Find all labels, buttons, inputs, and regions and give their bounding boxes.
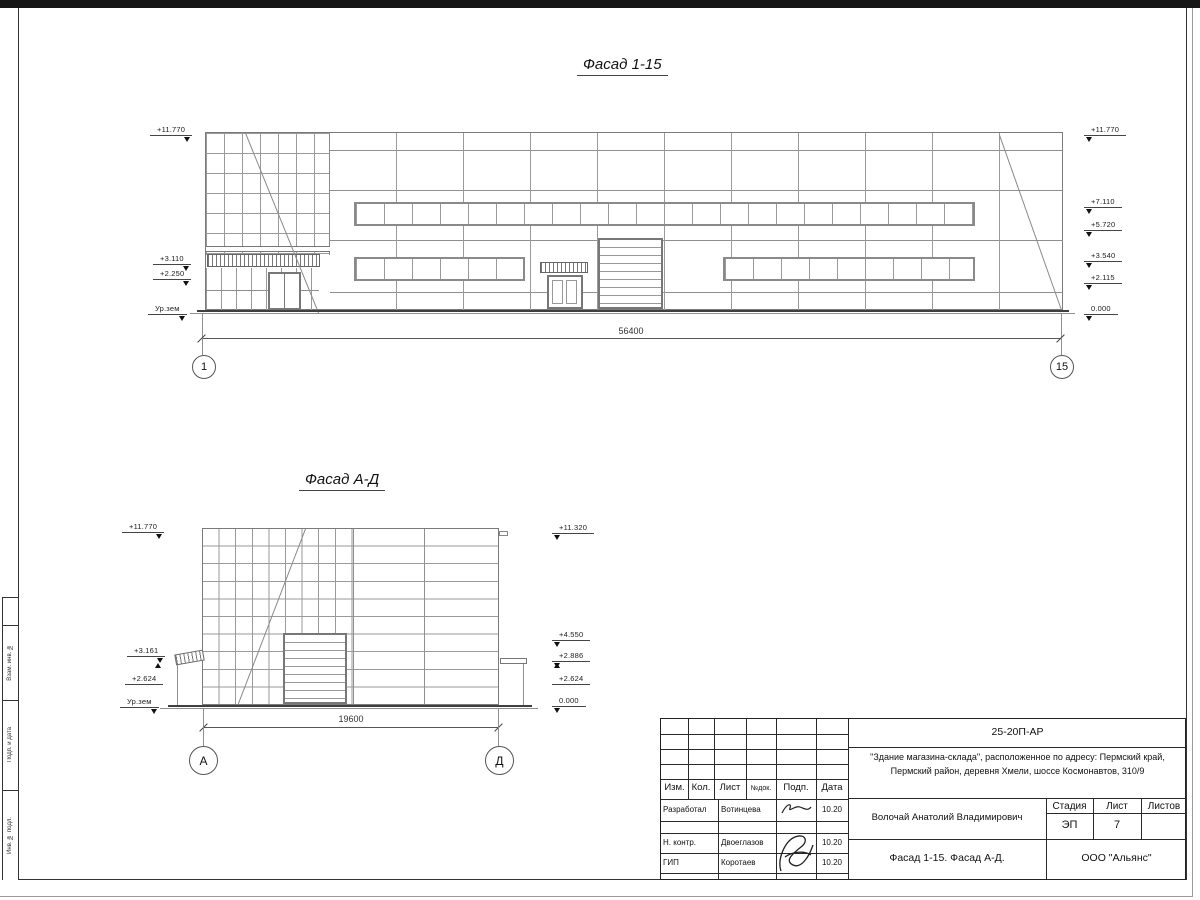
side-stamp-cell: Взам. инв. № (3, 625, 17, 700)
title-block: Изм. Кол. Лист №док. Подп. Дата Разработ… (660, 718, 1186, 880)
side-canopy (500, 658, 527, 664)
level-arrow-icon (156, 534, 162, 539)
sign-date: 10.20 (816, 858, 848, 867)
elevation-value: +3.540 (1084, 251, 1122, 262)
person-name: Двоеглазов (721, 838, 764, 847)
facade-a-d-title: Фасад А-Д (299, 471, 385, 491)
level-arrow-icon (554, 663, 560, 668)
tb-line (661, 821, 848, 822)
level-arrow-icon (179, 316, 185, 321)
tb-line (661, 749, 848, 750)
elevation-mark: +2.624 (552, 668, 590, 686)
sheet-right-edge (1192, 8, 1193, 897)
tb-line (661, 734, 848, 735)
elevation-value: +2.115 (1084, 273, 1122, 284)
door-leaf (566, 280, 577, 304)
elevation-mark: +2.115 (1084, 267, 1122, 285)
sign-date: 10.20 (816, 838, 848, 847)
axis-leader (498, 727, 499, 746)
elevation-value: +2.624 (552, 674, 590, 685)
elevation-value: Ур.зем (148, 304, 187, 315)
sheets-label: Листов (1141, 801, 1187, 812)
tb-line (661, 764, 848, 765)
stage-label: Стадия (1046, 801, 1093, 812)
elevation-value: +3.161 (127, 646, 165, 657)
axis-bubble: Д (485, 746, 514, 775)
elevation-value: +2.250 (153, 269, 191, 280)
signature (779, 800, 813, 818)
tb-line (848, 839, 1187, 840)
col-header-podp: Подп. (776, 782, 816, 793)
ribbon-window-band (723, 257, 975, 281)
elevation-value: +11.770 (1084, 125, 1126, 136)
elevation-mark: +2.624 (125, 668, 163, 686)
storefront-awning (207, 254, 320, 267)
elevation-mark: +11.320 (552, 517, 594, 535)
sign-date: 10.20 (816, 805, 848, 814)
ribbon-window-band (354, 257, 525, 281)
entrance-canopy (540, 262, 588, 273)
tb-line (661, 853, 848, 854)
project-description-line1: "Здание магазина-склада", расположенное … (851, 752, 1184, 762)
sheet-number: 7 (1093, 819, 1141, 831)
elevation-value: +4.550 (552, 630, 590, 641)
elevation-mark: 0.000 (552, 690, 586, 708)
lean-to-post (177, 662, 178, 705)
elevation-mark: +4.550 (552, 624, 590, 642)
col-header-ndok: №док. (746, 785, 776, 792)
company-name: ООО "Альянс" (1046, 852, 1187, 864)
level-arrow-icon (1086, 232, 1092, 237)
person-name: Коротаев (721, 858, 756, 867)
tb-line (848, 747, 1187, 748)
side-stamp-cell: Подп. и дата (3, 700, 17, 790)
axis-bubble: А (189, 746, 218, 775)
elevation-mark: +11.770 (150, 119, 192, 137)
elevation-mark: +3.161 (127, 640, 165, 658)
tb-line (661, 833, 848, 834)
ground-line-secondary (190, 313, 1075, 314)
parapet-tab (499, 531, 508, 536)
axis-leader (1061, 338, 1062, 355)
frame-left (18, 8, 19, 880)
col-header-list: Лист (714, 782, 746, 793)
curtain-wall-grid (206, 133, 330, 255)
elevation-mark: +7.110 (1084, 191, 1122, 209)
elevation-value: +7.110 (1084, 197, 1122, 208)
elevation-value: +5.720 (1084, 220, 1122, 231)
level-arrow-icon (155, 663, 161, 668)
tb-line (848, 798, 1187, 799)
level-arrow-icon (183, 281, 189, 286)
tb-line (1046, 813, 1187, 814)
side-stamp-label: Взам. инв. № (7, 644, 13, 681)
elevation-value: 0.000 (552, 696, 586, 707)
col-header-izm: Изм. (661, 782, 688, 793)
level-arrow-icon (151, 709, 157, 714)
signature (775, 831, 817, 877)
dimension-text: 56400 (596, 326, 666, 336)
tb-line (661, 799, 848, 800)
door-leaf-split (284, 274, 285, 308)
storefront-door (268, 272, 301, 310)
mullion (353, 529, 354, 704)
axis-bubble: 1 (192, 355, 216, 379)
side-canopy-post (523, 664, 524, 705)
axis-leader (202, 338, 203, 355)
dimension-text: 19600 (316, 714, 386, 724)
ribbon-window-band (354, 202, 975, 226)
mullion (424, 529, 425, 704)
level-arrow-icon (1086, 137, 1092, 142)
elevation-value: +2.886 (552, 651, 590, 662)
elevation-value: +11.320 (552, 523, 594, 534)
role-label: Разработал (663, 805, 707, 814)
elevation-mark: +11.770 (122, 516, 164, 534)
facade-1-15-title: Фасад 1-15 (577, 56, 668, 76)
tb-line (661, 779, 848, 780)
axis-leader (203, 727, 204, 746)
door-leaf (552, 280, 563, 304)
sheet-top-edge (0, 0, 1200, 8)
elevation-mark: 0.000 (1084, 298, 1118, 316)
sheet-label: Лист (1093, 801, 1141, 812)
dimension-line (201, 338, 1061, 339)
elevation-value: Ур.зем (120, 697, 159, 708)
elevation-mark: +2.250 (153, 263, 191, 281)
role-label: Н. контр. (663, 838, 696, 847)
level-arrow-icon (184, 137, 190, 142)
drawing-sheet: Взам. инв. № Подп. и дата Инв. № подл. Ф… (0, 0, 1200, 900)
side-stamp-cell: Инв. № подл. (3, 790, 17, 880)
elevation-value: +2.624 (125, 674, 163, 685)
lean-to-roof (174, 650, 204, 666)
side-stamp-line (2, 597, 18, 598)
elevation-mark: Ур.зем (148, 298, 187, 316)
frame-right (1186, 8, 1187, 880)
side-stamp-label: Инв. № подл. (7, 817, 13, 854)
elevation-value: +11.770 (122, 522, 164, 533)
entrance-door (547, 275, 583, 309)
ground-line (168, 705, 532, 707)
sheet-bottom-edge (0, 896, 1193, 897)
storefront-transom (206, 290, 319, 291)
facade-a-d-drawing (202, 528, 499, 705)
roller-door (283, 633, 347, 704)
elevation-mark: +3.540 (1084, 245, 1122, 263)
level-arrow-icon (1086, 316, 1092, 321)
roller-door (598, 238, 663, 309)
person-name: Вотинцева (721, 805, 761, 814)
tb-line (718, 799, 719, 879)
level-arrow-icon (1086, 285, 1092, 290)
stage-value: ЭП (1046, 819, 1093, 831)
ground-line (197, 310, 1069, 312)
level-arrow-icon (554, 535, 560, 540)
axis-bubble: 15 (1050, 355, 1074, 379)
facade-1-15-drawing (205, 132, 1063, 310)
document-code: 25-20П-АР (848, 726, 1187, 738)
elevation-mark: +5.720 (1084, 214, 1122, 232)
role-label: ГИП (663, 858, 679, 867)
ground-line-secondary (160, 708, 538, 709)
elevation-mark: +11.770 (1084, 119, 1126, 137)
fascia-beam (206, 246, 330, 252)
project-description-line2: Пермский район, деревня Хмели, шоссе Кос… (851, 766, 1184, 776)
side-stamp-label: Подп. и дата (7, 727, 13, 762)
elevation-value: 0.000 (1084, 304, 1118, 315)
col-header-kol: Кол. (688, 782, 714, 793)
level-arrow-icon (554, 708, 560, 713)
elevation-mark: +2.886 (552, 645, 590, 663)
drawing-title: Фасад 1-15. Фасад А-Д. (848, 852, 1046, 864)
col-header-data: Дата (816, 782, 848, 793)
elevation-mark: Ур.зем (120, 691, 159, 709)
dimension-line (203, 727, 499, 728)
elevation-value: +11.770 (150, 125, 192, 136)
tb-line (661, 873, 848, 874)
supervisor-name: Волочай Анатолий Владимирович (848, 812, 1046, 823)
